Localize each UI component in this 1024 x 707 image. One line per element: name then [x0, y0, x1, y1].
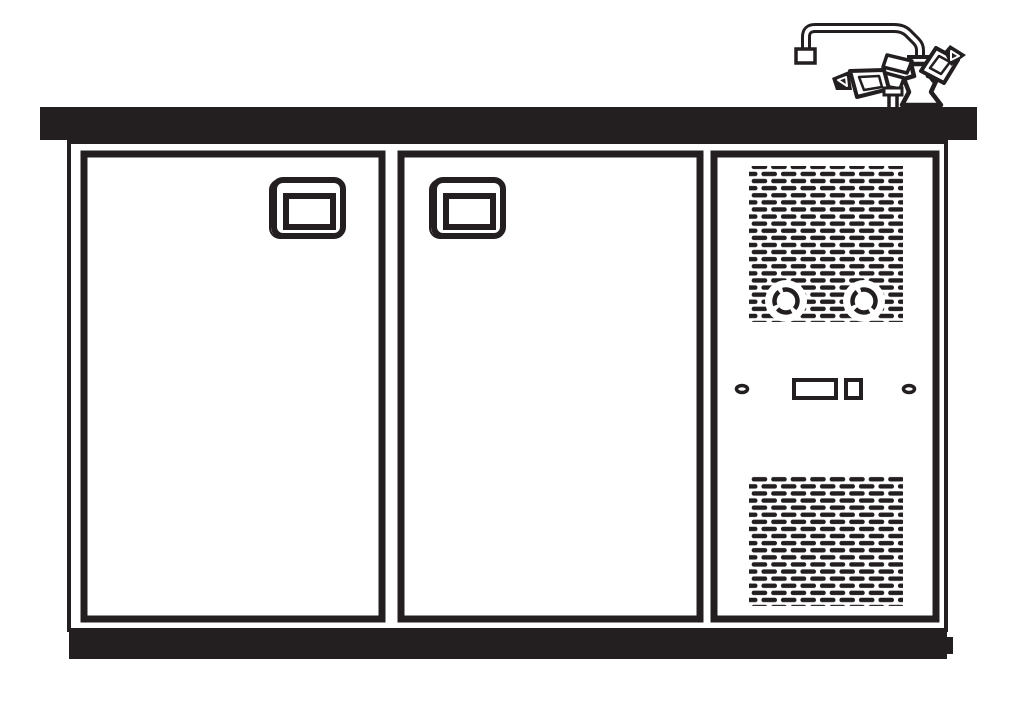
plinth-end-tab: [944, 637, 953, 654]
left-door-handle: [270, 180, 343, 238]
countertop-slab: [40, 107, 977, 140]
left-handle-recess: [286, 196, 333, 227]
right-door: [401, 154, 700, 619]
right-handle-recess: [446, 196, 493, 227]
faucet-leg-bracket: [884, 88, 902, 95]
faucet-left-handle-tip: [832, 71, 852, 90]
diagram-canvas: [0, 0, 1024, 707]
plinth: [69, 632, 953, 659]
plinth-bar: [69, 632, 947, 659]
faucet-outlet: [796, 49, 815, 63]
indicator-window: [794, 380, 836, 398]
backbar-cooler-diagram: [0, 0, 1024, 707]
faucet-legs: [889, 95, 897, 107]
bottom-grille-pattern: [749, 476, 903, 606]
countertop: [40, 107, 977, 140]
screw-left-icon: [737, 386, 748, 393]
faucet-spout: [806, 28, 920, 62]
left-door: [84, 154, 382, 619]
power-switch: [846, 380, 861, 398]
right-door-handle: [430, 180, 503, 238]
faucet-icon: [796, 28, 966, 107]
top-ventilation-grille: [749, 166, 903, 322]
screw-right-icon: [904, 386, 915, 393]
bottom-ventilation-grille: [749, 476, 903, 606]
compressor-panel: [714, 154, 936, 619]
